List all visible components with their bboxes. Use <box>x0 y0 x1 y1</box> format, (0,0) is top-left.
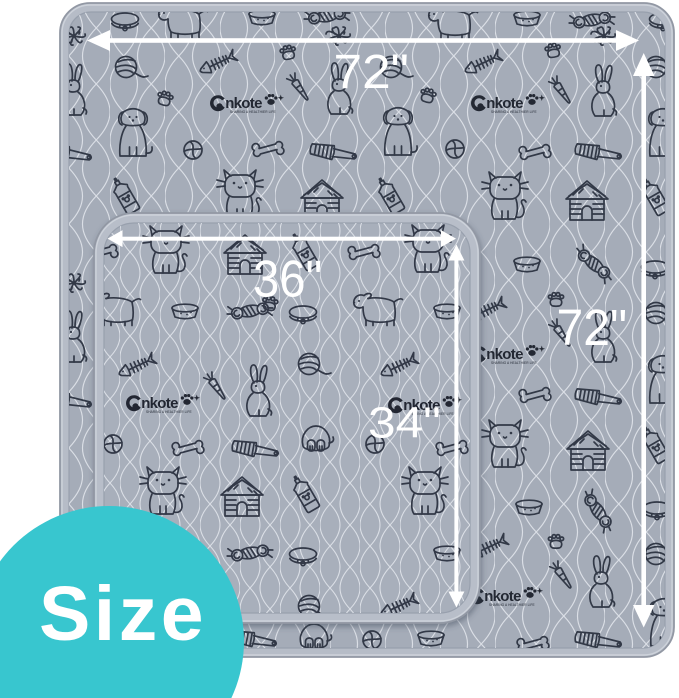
svg-text:36": 36" <box>253 251 322 309</box>
svg-text:72": 72" <box>557 299 628 356</box>
svg-text:34": 34" <box>368 399 441 448</box>
svg-text:72": 72" <box>334 46 409 99</box>
svg-text:Size: Size <box>39 571 207 657</box>
